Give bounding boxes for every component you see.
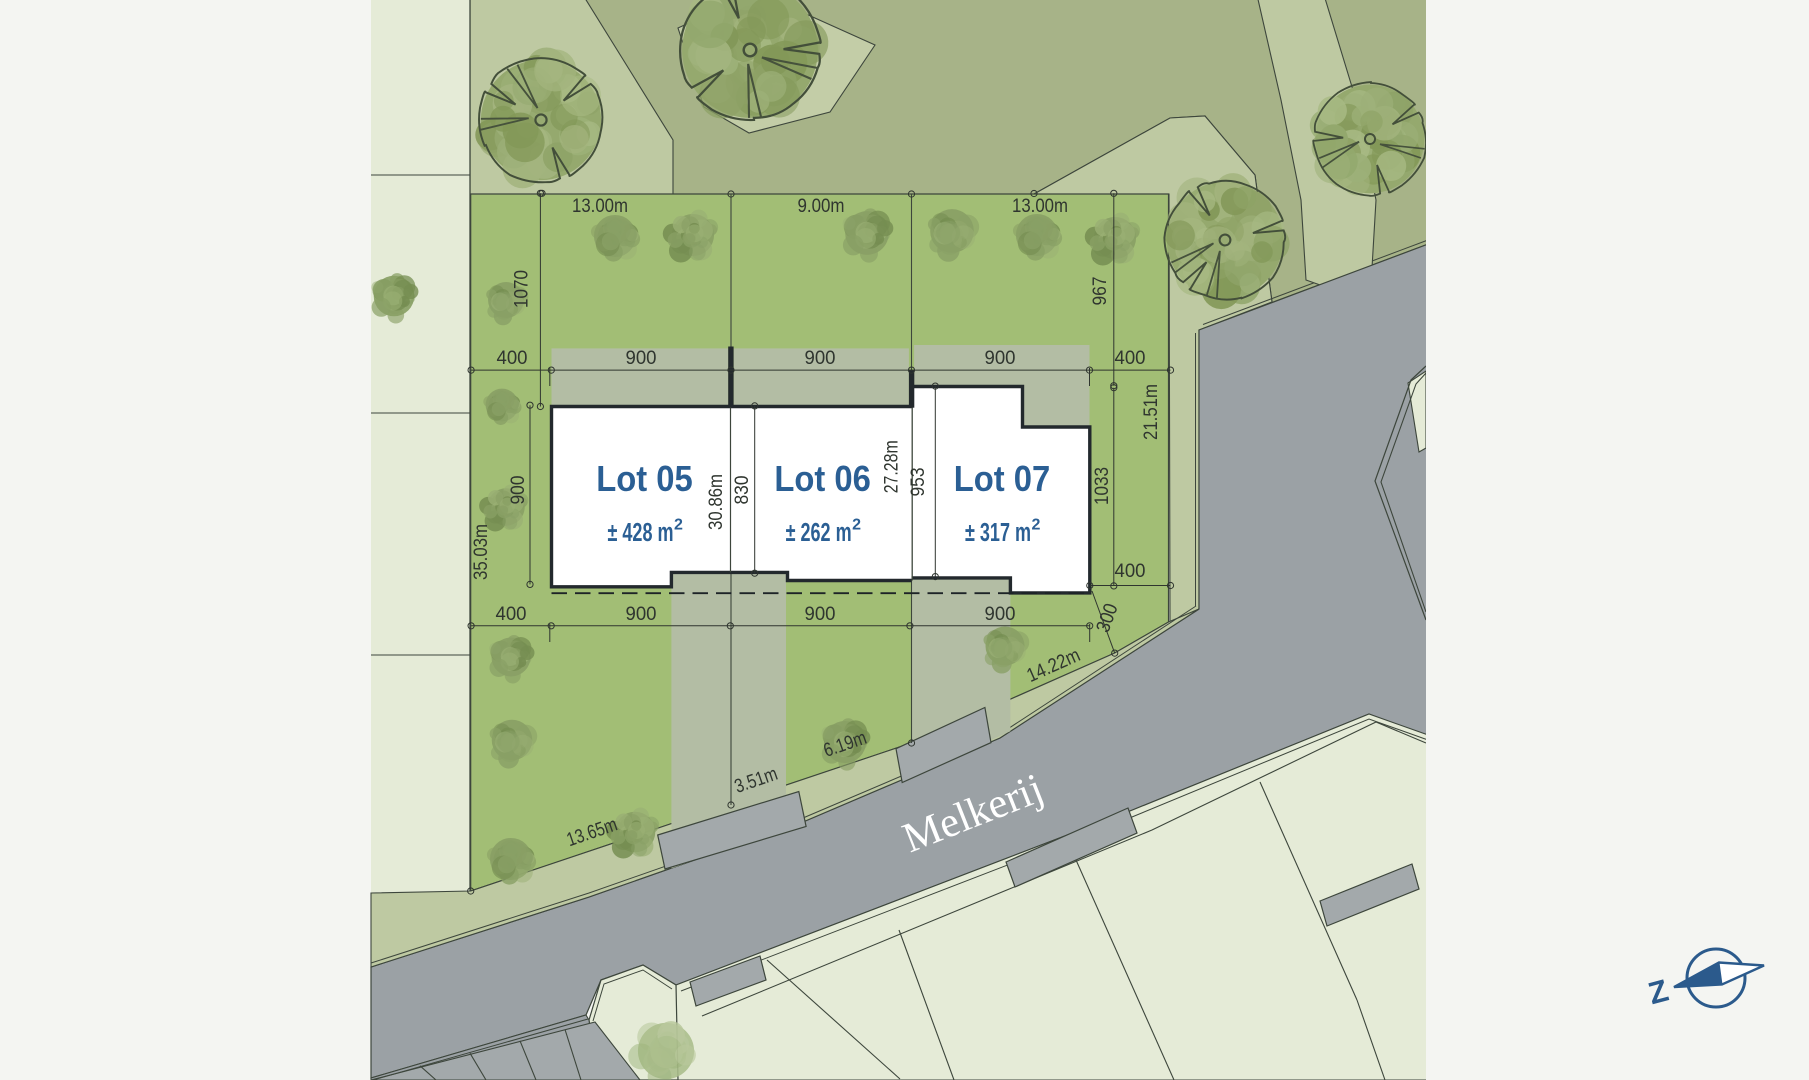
svg-text:400: 400 [497, 347, 528, 369]
svg-text:30.86m: 30.86m [705, 474, 727, 530]
svg-text:953: 953 [907, 468, 929, 497]
svg-text:900: 900 [626, 347, 657, 369]
svg-text:2: 2 [852, 517, 861, 534]
svg-text:± 317 m: ± 317 m [965, 519, 1031, 547]
svg-text:900: 900 [626, 603, 657, 625]
svg-text:± 262 m: ± 262 m [786, 519, 852, 547]
svg-text:Lot 05: Lot 05 [596, 458, 693, 499]
svg-text:9.00m: 9.00m [798, 195, 845, 217]
svg-text:900: 900 [805, 603, 836, 625]
svg-text:967: 967 [1089, 277, 1111, 306]
svg-text:1070: 1070 [511, 270, 533, 308]
svg-text:Lot 06: Lot 06 [774, 458, 871, 499]
svg-text:2: 2 [1032, 517, 1041, 534]
svg-text:21.51m: 21.51m [1140, 384, 1162, 440]
svg-text:35.03m: 35.03m [470, 524, 492, 580]
svg-text:1033: 1033 [1091, 467, 1113, 505]
svg-text:900: 900 [985, 347, 1016, 369]
svg-text:2: 2 [674, 517, 683, 534]
svg-text:400: 400 [1115, 347, 1146, 369]
svg-text:27.28m: 27.28m [881, 440, 903, 493]
svg-text:13.00m: 13.00m [1012, 195, 1068, 217]
svg-text:830: 830 [731, 475, 753, 504]
svg-text:900: 900 [805, 347, 836, 369]
svg-text:13.00m: 13.00m [572, 195, 628, 217]
svg-text:900: 900 [507, 475, 529, 504]
svg-text:900: 900 [985, 603, 1016, 625]
svg-text:± 428 m: ± 428 m [608, 519, 674, 547]
svg-text:400: 400 [1115, 560, 1146, 582]
svg-text:Lot 07: Lot 07 [954, 458, 1051, 499]
svg-text:400: 400 [496, 603, 527, 625]
